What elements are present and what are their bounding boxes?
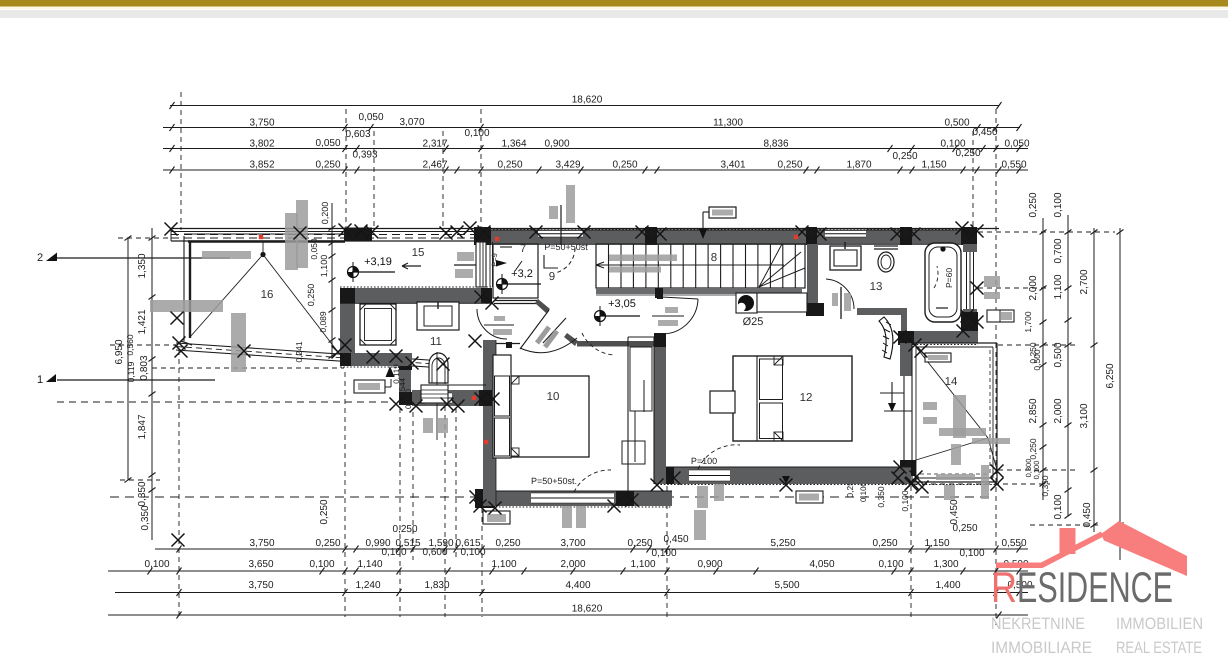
svg-text:IMMOBILIEN: IMMOBILIEN bbox=[1116, 615, 1203, 633]
svg-text:0,250: 0,250 bbox=[404, 388, 413, 409]
svg-text:1,100: 1,100 bbox=[491, 559, 516, 570]
svg-text:0,450: 0,450 bbox=[972, 127, 997, 138]
svg-text:0,100: 0,100 bbox=[878, 559, 903, 570]
svg-text:1,870: 1,870 bbox=[846, 160, 871, 171]
svg-text:1,140: 1,140 bbox=[357, 559, 382, 570]
svg-text:P=50+50st: P=50+50st bbox=[544, 242, 588, 252]
svg-text:0,119: 0,119 bbox=[126, 361, 136, 382]
svg-text:1,150: 1,150 bbox=[921, 160, 946, 171]
svg-text:2,000: 2,000 bbox=[560, 559, 585, 570]
svg-text:1,350: 1,350 bbox=[137, 253, 148, 278]
svg-text:1,100: 1,100 bbox=[1053, 274, 1064, 299]
svg-text:3,750: 3,750 bbox=[249, 538, 274, 549]
svg-text:0,250: 0,250 bbox=[892, 151, 917, 162]
svg-text:0,250: 0,250 bbox=[777, 160, 802, 171]
svg-text:3,650: 3,650 bbox=[248, 559, 273, 570]
svg-text:0,250: 0,250 bbox=[1028, 192, 1039, 217]
svg-text:0,250: 0,250 bbox=[495, 538, 520, 549]
svg-text:8: 8 bbox=[711, 252, 717, 264]
svg-text:4,400: 4,400 bbox=[565, 580, 590, 591]
svg-text:3,429: 3,429 bbox=[555, 160, 580, 171]
svg-text:8,836: 8,836 bbox=[763, 139, 788, 150]
svg-text:0,100: 0,100 bbox=[900, 490, 910, 512]
svg-text:+3,05: +3,05 bbox=[608, 298, 636, 310]
svg-text:2: 2 bbox=[37, 252, 43, 264]
svg-text:ESIDENCE: ESIDENCE bbox=[1017, 564, 1173, 612]
svg-text:1,100: 1,100 bbox=[319, 255, 329, 278]
svg-text:0,550: 0,550 bbox=[1001, 160, 1026, 171]
svg-text:0,250: 0,250 bbox=[1028, 438, 1038, 460]
svg-text:3,750: 3,750 bbox=[248, 580, 273, 591]
svg-text:0,600: 0,600 bbox=[422, 547, 447, 558]
svg-text:1,421: 1,421 bbox=[137, 309, 148, 334]
svg-text:0,250: 0,250 bbox=[612, 160, 637, 171]
svg-text:0,100: 0,100 bbox=[1053, 494, 1064, 519]
svg-text:2,317: 2,317 bbox=[422, 139, 447, 150]
svg-text:Ø25: Ø25 bbox=[743, 316, 764, 328]
svg-text:1,240: 1,240 bbox=[355, 580, 380, 591]
svg-text:0,500: 0,500 bbox=[1053, 342, 1064, 367]
svg-text:0,050: 0,050 bbox=[315, 138, 340, 149]
svg-text:REAL ESTATE: REAL ESTATE bbox=[1116, 639, 1202, 657]
svg-text:0,250: 0,250 bbox=[627, 538, 652, 549]
svg-text:1,364: 1,364 bbox=[501, 139, 526, 150]
svg-text:4,050: 4,050 bbox=[809, 559, 834, 570]
svg-text:13: 13 bbox=[870, 281, 883, 293]
svg-text:0,100: 0,100 bbox=[651, 548, 676, 559]
svg-text:6,950: 6,950 bbox=[114, 339, 125, 364]
svg-text:0,803: 0,803 bbox=[139, 355, 150, 380]
svg-text:0,100: 0,100 bbox=[464, 128, 489, 139]
svg-text:0,700: 0,700 bbox=[1053, 238, 1064, 263]
svg-text:11: 11 bbox=[430, 336, 442, 348]
svg-text:+3,19: +3,19 bbox=[364, 256, 392, 268]
svg-text:0,100: 0,100 bbox=[859, 481, 868, 502]
svg-text:3,852: 3,852 bbox=[249, 160, 274, 171]
svg-text:1: 1 bbox=[37, 374, 43, 386]
svg-text:3,802: 3,802 bbox=[249, 139, 274, 150]
svg-text:0,250: 0,250 bbox=[315, 538, 340, 549]
svg-text:0,603: 0,603 bbox=[345, 129, 370, 140]
svg-text:3,401: 3,401 bbox=[720, 160, 745, 171]
svg-text:5,500: 5,500 bbox=[774, 580, 799, 591]
svg-text:1,400: 1,400 bbox=[935, 580, 960, 591]
svg-text:3,750: 3,750 bbox=[249, 118, 274, 129]
svg-text:9: 9 bbox=[549, 271, 555, 283]
svg-text:NEKRETNINE: NEKRETNINE bbox=[991, 615, 1085, 633]
svg-text:16: 16 bbox=[261, 289, 274, 301]
svg-text:R: R bbox=[991, 564, 1017, 612]
svg-text:0,241: 0,241 bbox=[294, 341, 304, 363]
svg-text:0,100: 0,100 bbox=[1053, 192, 1064, 217]
svg-text:12: 12 bbox=[800, 392, 813, 404]
svg-text:1,100: 1,100 bbox=[630, 559, 655, 570]
svg-text:0,250: 0,250 bbox=[872, 538, 897, 549]
svg-text:15: 15 bbox=[412, 247, 425, 259]
svg-text:P=60: P=60 bbox=[944, 268, 954, 288]
svg-text:0,900: 0,900 bbox=[697, 559, 722, 570]
svg-text:2,467: 2,467 bbox=[422, 160, 447, 171]
svg-text:0,050: 0,050 bbox=[309, 238, 319, 260]
svg-text:0,350: 0,350 bbox=[140, 505, 151, 530]
svg-text:3,070: 3,070 bbox=[399, 117, 424, 128]
svg-text:0,100: 0,100 bbox=[144, 559, 169, 570]
svg-text:3,100: 3,100 bbox=[1079, 403, 1090, 428]
svg-text:2,700: 2,700 bbox=[1079, 269, 1090, 294]
svg-text:0,050: 0,050 bbox=[358, 112, 383, 123]
svg-text:0,900: 0,900 bbox=[544, 139, 569, 150]
svg-text:11,300: 11,300 bbox=[713, 118, 743, 129]
svg-text:0,500: 0,500 bbox=[1032, 349, 1042, 371]
svg-text:0,250: 0,250 bbox=[955, 148, 980, 159]
svg-text:0,100: 0,100 bbox=[309, 559, 334, 570]
svg-text:0,050: 0,050 bbox=[1004, 139, 1029, 150]
svg-text:0,450: 0,450 bbox=[1082, 502, 1093, 527]
svg-text:18,620: 18,620 bbox=[572, 95, 603, 106]
svg-text:1,700: 1,700 bbox=[1023, 311, 1033, 333]
svg-text:0,089: 0,089 bbox=[318, 311, 328, 333]
svg-text:0,350: 0,350 bbox=[137, 481, 148, 506]
svg-text:1,847: 1,847 bbox=[137, 414, 148, 439]
svg-text:0,550: 0,550 bbox=[1001, 538, 1026, 549]
svg-text:18,620: 18,620 bbox=[572, 604, 603, 615]
svg-text:0,250: 0,250 bbox=[497, 160, 522, 171]
svg-text:0,100: 0,100 bbox=[959, 548, 984, 559]
svg-text:5,250: 5,250 bbox=[770, 538, 795, 549]
svg-text:2,850: 2,850 bbox=[1028, 398, 1039, 423]
svg-text:0,500: 0,500 bbox=[944, 118, 969, 129]
svg-text:1,830: 1,830 bbox=[424, 580, 449, 591]
svg-text:P=50+50st.: P=50+50st. bbox=[531, 476, 577, 486]
svg-text:0,200: 0,200 bbox=[320, 202, 330, 225]
svg-text:0,250: 0,250 bbox=[392, 524, 417, 535]
svg-text:0,250: 0,250 bbox=[306, 284, 316, 307]
svg-text:0,450: 0,450 bbox=[949, 499, 960, 524]
svg-text:0,250: 0,250 bbox=[319, 499, 330, 524]
svg-text:2,000: 2,000 bbox=[1053, 398, 1064, 423]
svg-text:1,300: 1,300 bbox=[933, 559, 958, 570]
svg-text:0,100: 0,100 bbox=[381, 547, 406, 558]
svg-text:6,250: 6,250 bbox=[1105, 363, 1116, 388]
svg-text:10: 10 bbox=[547, 391, 560, 403]
svg-text:+3,2: +3,2 bbox=[511, 268, 533, 280]
svg-text:0,350: 0,350 bbox=[1040, 475, 1050, 497]
svg-text:P=100: P=100 bbox=[691, 456, 717, 466]
svg-text:1,150: 1,150 bbox=[924, 538, 949, 549]
svg-text:0,250: 0,250 bbox=[315, 160, 340, 171]
svg-text:3,700: 3,700 bbox=[560, 538, 585, 549]
svg-text:7: 7 bbox=[520, 243, 526, 255]
svg-text:IMMOBILIARE: IMMOBILIARE bbox=[991, 639, 1092, 657]
